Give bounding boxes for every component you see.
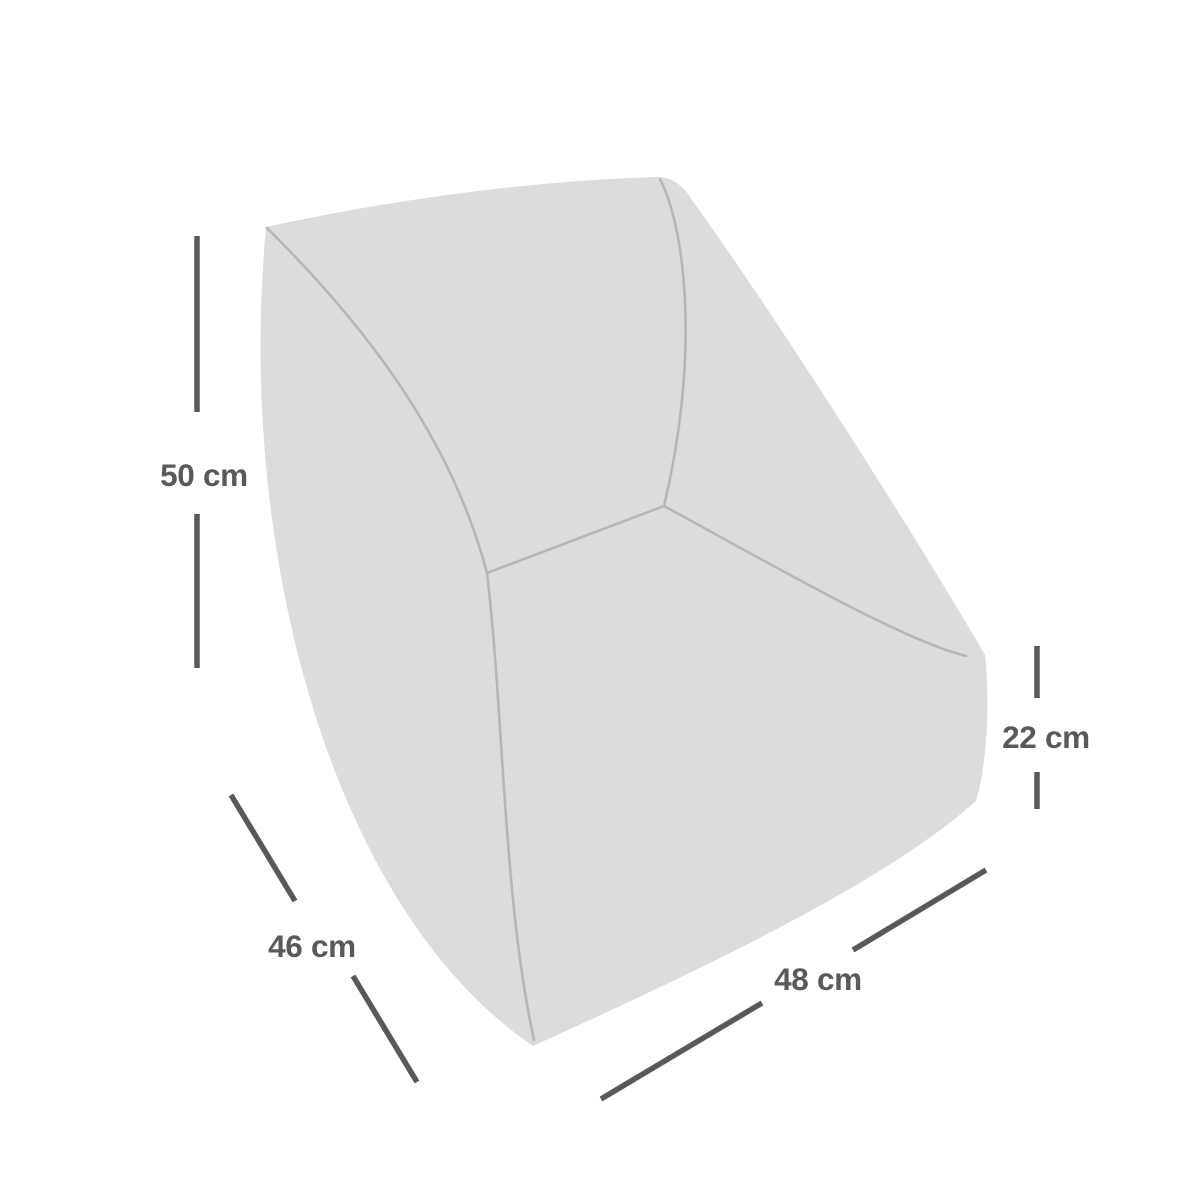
- front-width-dimension-line-lower: [601, 1003, 762, 1099]
- front-width-dimension-line-upper: [853, 870, 986, 950]
- base-height-dimension-label: 22 cm: [1002, 719, 1090, 755]
- chair-silhouette: [261, 177, 988, 1046]
- side-depth-dimension-line-upper: [231, 795, 295, 901]
- chair-dimension-diagram: 50 cm 46 cm 48 cm 22 cm: [0, 0, 1200, 1200]
- side-depth-dimension-line-lower: [353, 976, 417, 1082]
- side-depth-dimension-label: 46 cm: [268, 928, 356, 964]
- front-width-dimension-label: 48 cm: [774, 961, 862, 997]
- dimension-diagram-canvas: 50 cm 46 cm 48 cm 22 cm: [0, 0, 1200, 1200]
- back-height-dimension-label: 50 cm: [160, 457, 248, 493]
